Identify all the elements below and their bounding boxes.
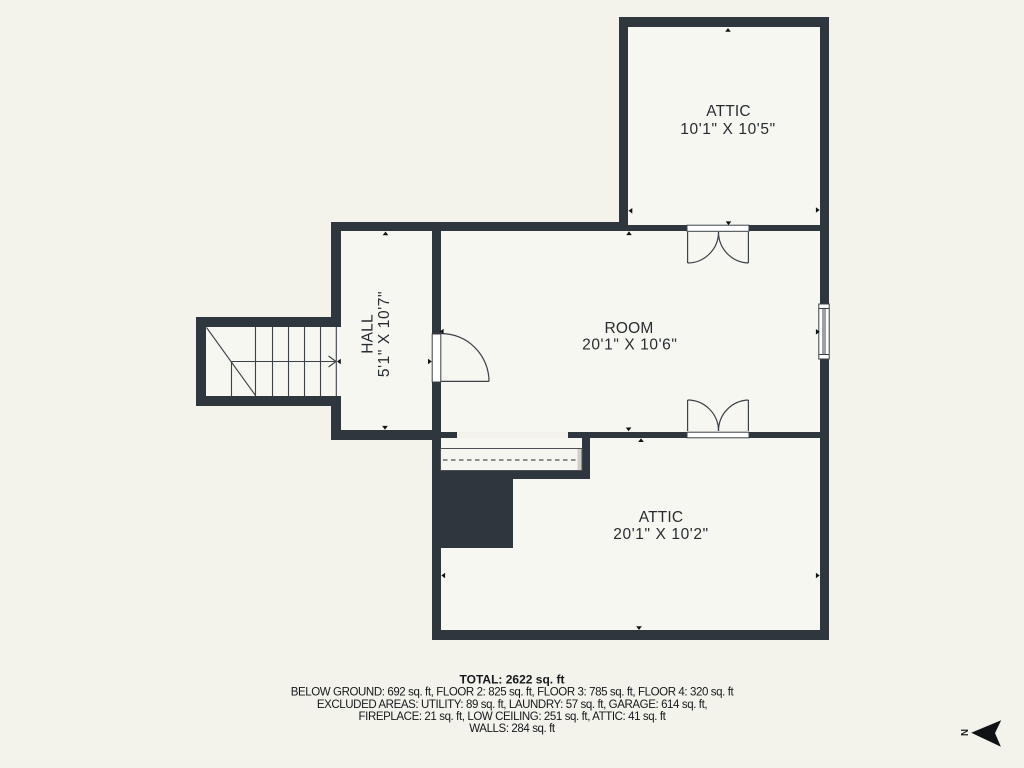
svg-text:BELOW GROUND: 692 sq. ft, FLOO: BELOW GROUND: 692 sq. ft, FLOOR 2: 825 s…: [291, 687, 735, 699]
svg-text:ROOM: ROOM: [604, 320, 653, 337]
svg-text:N: N: [960, 729, 971, 736]
svg-text:10'1" X 10'5": 10'1" X 10'5": [680, 121, 775, 138]
svg-text:20'1" X 10'6": 20'1" X 10'6": [582, 337, 677, 354]
svg-text:HALL: HALL: [359, 314, 376, 354]
svg-text:WALLS: 284 sq. ft: WALLS: 284 sq. ft: [469, 723, 556, 735]
svg-text:FIREPLACE: 21 sq. ft, LOW CEIL: FIREPLACE: 21 sq. ft, LOW CEILING: 251 s…: [359, 711, 667, 723]
svg-text:5'1" X 10'7": 5'1" X 10'7": [376, 291, 393, 377]
svg-text:ATTIC: ATTIC: [706, 103, 751, 120]
svg-text:20'1" X 10'2": 20'1" X 10'2": [613, 526, 708, 543]
svg-text:TOTAL: 2622 sq. ft: TOTAL: 2622 sq. ft: [460, 673, 565, 687]
svg-text:EXCLUDED AREAS: UTILITY: 89 sq: EXCLUDED AREAS: UTILITY: 89 sq. ft, LAUN…: [317, 699, 708, 711]
svg-text:ATTIC: ATTIC: [639, 509, 684, 526]
